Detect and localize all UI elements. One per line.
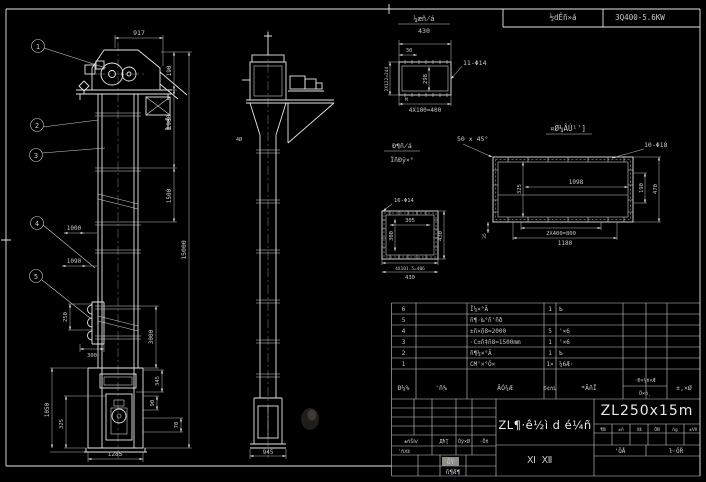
dim-4x101: 4X101.5=406 [395,266,425,272]
detail-c-label2: ÏñĐÿ×° [390,155,413,164]
side-view: 945 4Ø [236,30,334,459]
dim-3000: 3000 [148,329,155,344]
dim-325b: 325 [517,184,523,194]
dim-300: 300 [87,353,97,359]
dim-4x100: 4X100=400 [409,107,442,114]
tb-cell: ÖÑ [654,426,660,433]
detail-b-title: ¤Ø¼ÃÚ¹'] [550,124,586,133]
dim-1050: 1050 [44,402,51,417]
dim-945: 945 [263,449,274,456]
dim-917: 917 [133,29,145,37]
bom-qty: 1 [548,339,552,346]
dim-250: 250 [63,312,69,322]
balloon-4: 4 [35,220,39,228]
bom-seq: 3 [402,339,406,346]
title-block: ZL¶·ê½ì d é¼ñ Ⅺ Ⅻ ZL250x15m ¶Ñ ±ñ Ⅻ ÖÑ ñ… [392,399,701,476]
bom-seq: 4 [402,328,406,335]
detail-discharge-flange: ¼æñ̸á 430 30 2X122=244 298 4X100=400 M 1… [384,15,487,114]
bom-h-remark: ±,×Ø [676,384,692,392]
dim-30: 30 [406,48,413,54]
bom-name: ±ñ×ׇñ8=2000 [470,328,507,335]
sheet-label: Ⅺ Ⅻ [527,455,553,466]
bom-h-seq: Đ¼% [398,384,410,392]
side-view-note: 4Ø [236,136,242,143]
bom-h-qty: Đ¢ñL [543,386,557,392]
bom-material: ¼6Æ· [559,361,573,368]
sig-h2: ДħŢ [439,439,448,445]
smudge-artifact [301,408,319,430]
dim-1500: 1500 [166,188,173,203]
stamp-text: ĞŸ [447,459,455,466]
dim-300b: 300 [389,231,395,241]
dim-345: 345 [155,376,161,386]
dim-305: 305 [405,218,415,224]
bom-h-weight-bottom: Ö×ñ¸ [639,390,651,397]
balloon-5: 5 [34,273,38,281]
sig-row2: 'ñⅫ [398,449,410,455]
bom-name: Ĭ¼×°Ã [470,305,488,313]
callout-11-phi14: 11-Φ14 [463,59,487,67]
bom-material: '×6׶ [559,328,570,335]
detail-inlet-flange: Đ¶ñ̸á ÏñĐÿ×° 16-Φ14 305 300 430 4X101.5=… [382,142,446,281]
weld-mark: M [405,97,408,103]
sheets-right: ŀ·ÖŘ [669,447,684,455]
bom-h-material: *ÃñĨ [581,383,597,392]
dim-325: 325 [59,419,65,429]
bom-name: ·C±ñ‡ñ8=1500mm [470,339,521,346]
bom-qty: 5 [548,328,552,335]
tb-cell: Ⅻ [636,427,642,433]
dim-35: 35 [482,233,488,239]
callout-16-phi14: 16-Φ14 [394,198,415,204]
sig-h1: ±ñŠⅣ [404,438,418,445]
balloon-1: 1 [36,43,40,51]
balloon-2: 2 [35,122,39,130]
detail-a-430: 430 [418,27,430,35]
bom-seq: 1 [402,361,406,368]
dim-1090: 1090 [67,258,82,265]
top-bar-cell2: 3Q400-5.6KW [615,13,665,22]
front-view: 1 2 3 4 5 917 190 1980 [30,29,193,462]
bom-header: Đ¼% 'ñ% ÃÓ¾Æ Đ¢ñL *ÃñĨ ·Đ×¼ñ×Æ Ö×ñ¸ ±,×Ø [398,378,692,397]
dim-1000: 1000 [67,225,82,232]
bom-material: Ƅ׶ [559,350,563,357]
dim-190b: 190 [639,183,645,193]
bom-material: '×6׶ [559,339,570,346]
bom-h-name: ÃÓ¾Æ [497,383,513,392]
tb-cell: ±ñ [618,427,624,433]
dim-190: 190 [166,65,173,76]
dim-298: 298 [423,74,429,84]
dim-90: 90 [150,400,156,407]
stamp-text2: ñ¶Æ¶ [446,469,461,476]
balloon-3: 3 [34,152,38,160]
tb-cell: ñg [672,427,678,433]
dim-2x122: 2X122=244 [384,67,390,92]
sig-h4: ·Öñ [479,438,488,445]
title-block-small-cells: ¶Ñ ±ñ Ⅻ ÖÑ ñg ±Ⅶ [600,426,698,433]
dim-430b: 430 [405,275,415,281]
bom-rows: 6 Ĭ¼×°Ã 1 Ƅ׶ 5 ñ¶·‰°ñ'ñð 4 ±ñ×ׇñ8=2000 5… [402,305,574,368]
bom-seq: 6 [402,306,406,313]
bom-qty: 1× [546,361,554,368]
detail-c-label1: Đ¶ñ̸á [392,142,412,150]
bom-seq: 2 [402,350,406,357]
dim-1285: 1285 [108,451,123,458]
callout-10-phi18: 10-Φ18 [644,141,668,149]
top-title-bar: ½dÊñ»á 3Q400-5.6KW [503,9,700,27]
dim-1980: 1980 [166,114,173,129]
drawing-title: ZL¶·ê½ì d é¼ñ [498,418,591,432]
bom-name: ñ¶·‰°ñ'ñð [470,317,503,324]
model-number: ZL250x15m [601,403,694,419]
top-bar-cell1: ½dÊñ»á [549,13,576,22]
dim-430r: 430 [438,231,444,241]
sig-h3: Óÿ×Ø [458,438,470,445]
dim-1098: 1098 [569,179,584,186]
detail-base-frame: ¤Ø¼ÃÚ¹'] 50 x 45° 10-Φ18 1098 325 190 47… [457,124,668,247]
cad-sheet: ½dÊñ»á 3Q400-5.6KW [0,0,706,482]
balloon-callouts: 1 2 3 4 5 [30,40,107,319]
detail-a-label: ¼æñ̸á [413,15,434,23]
dim-470: 470 [653,184,659,194]
bom-h-dwg: 'ñ% [435,384,447,392]
tb-cell: ±Ⅶ [689,427,698,433]
chamfer-note: 50 x 45° [457,135,488,143]
bom-table: 6 Ĭ¼×°Ã 1 Ƅ׶ 5 ñ¶·‰°ñ'ñð 4 ±ñ×ׇñ8=2000 5… [392,303,701,399]
bom-qty: 1 [548,306,552,313]
bom-h-weight-top: ·Đ×¼ñ×Æ [634,378,655,384]
cad-drawing-canvas[interactable]: ½dÊñ»á 3Q400-5.6KW [0,0,706,482]
bom-material: Ƅ׶ [559,306,563,313]
sheets-left: 'ÖÅ [615,448,626,455]
signature-area: ±ñŠⅣ ДħŢ Óÿ×Ø ·Öñ 'ñⅫ ĞŸ ñ¶Æ¶ [398,438,488,476]
bom-name: ñ¶¼×°Ã [470,350,492,357]
dim-1180: 1180 [558,240,573,247]
dim-70: 70 [174,422,180,429]
dim-2x400: 2X400=800 [546,231,576,237]
bom-qty: 1 [548,350,552,357]
bom-name: CM'×°Ö× [470,361,496,368]
tb-cell: ¶Ñ [600,426,606,433]
bom-seq: 5 [402,317,406,324]
dim-15000: 15000 [180,240,188,260]
